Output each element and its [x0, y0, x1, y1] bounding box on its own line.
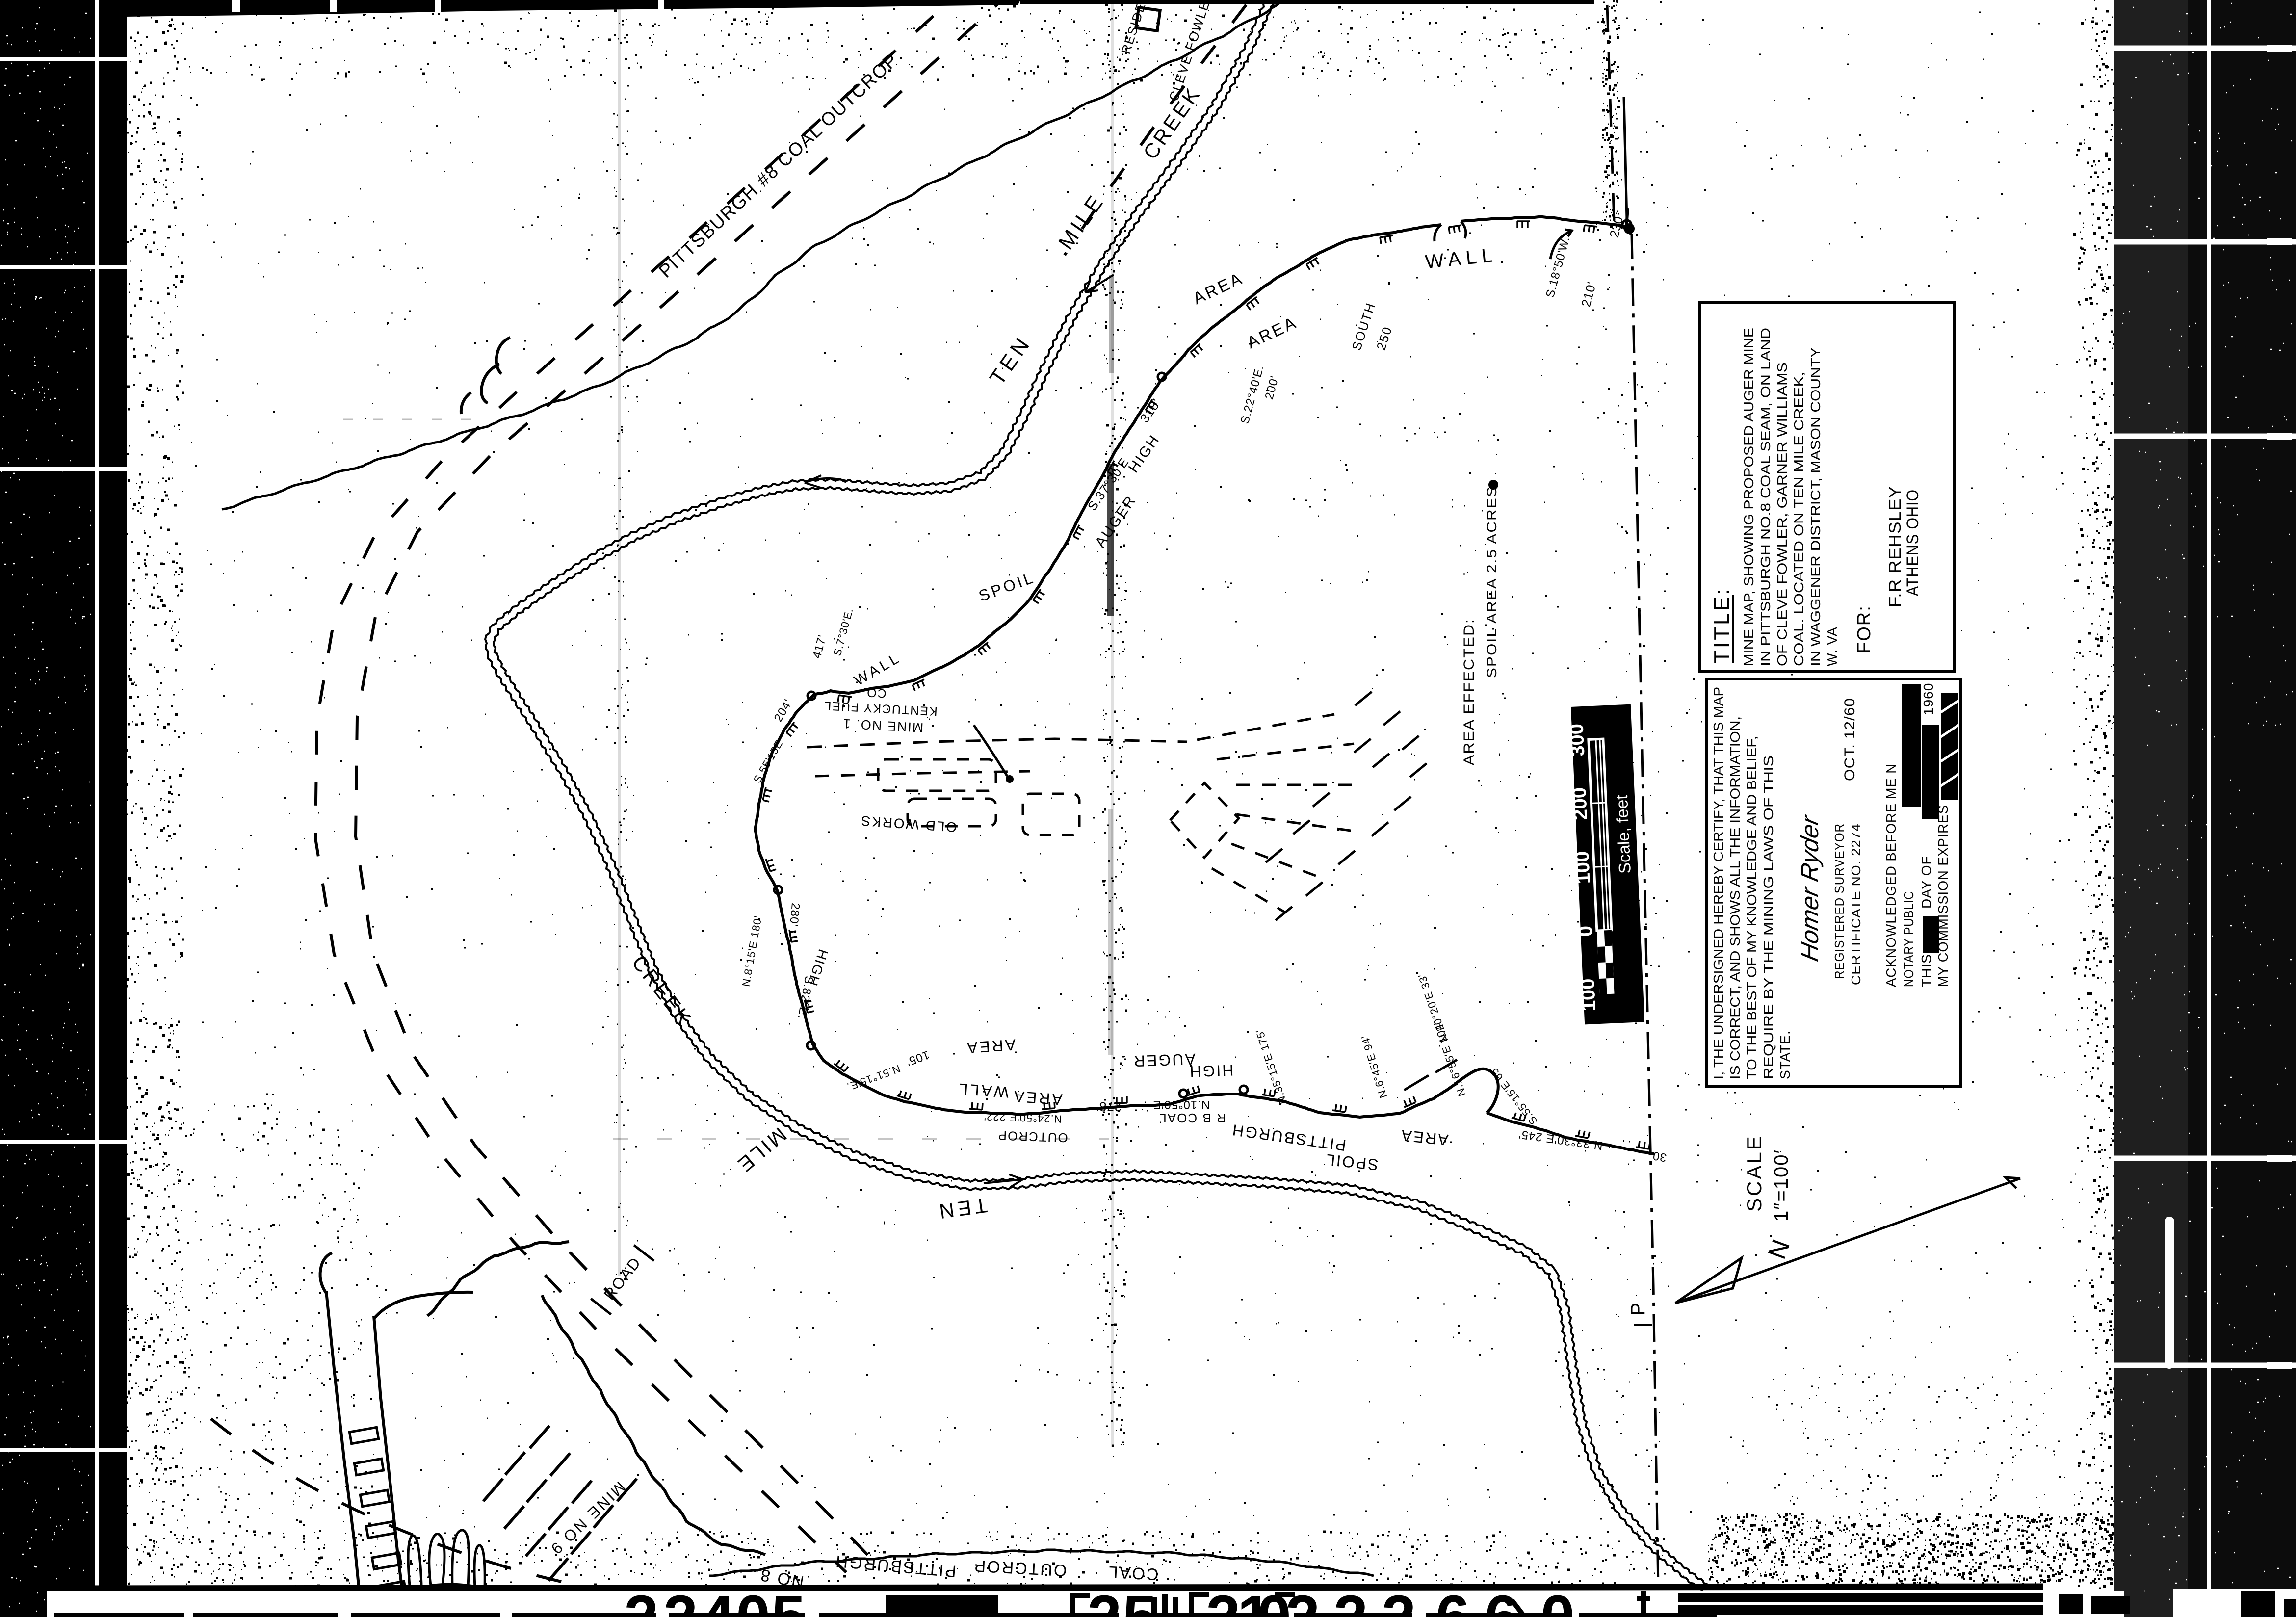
svg-text:AREA: AREA: [1012, 1087, 1063, 1108]
svg-text:IN PITTSBURGH NO.8 COAL SEAM,: IN PITTSBURGH NO.8 COAL SEAM, ON LAND: [1758, 328, 1773, 666]
svg-text:R B COAL: R B COAL: [1158, 1111, 1226, 1125]
svg-text:P: P: [1627, 1303, 1649, 1316]
svg-text:AREA EFFECTED:: AREA EFFECTED:: [1461, 618, 1477, 765]
svg-text:COAL. LOCATED ON TEN MILE CREE: COAL. LOCATED ON TEN MILE CREEK,: [1791, 372, 1806, 666]
svg-text:300: 300: [1565, 723, 1589, 757]
svg-text:REGISTERED SURVEYOR: REGISTERED SURVEYOR: [1832, 823, 1847, 979]
svg-text:ATHENS OHIO: ATHENS OHIO: [1904, 489, 1922, 596]
svg-text:WALL: WALL: [956, 1080, 1009, 1101]
svg-text:200: 200: [1568, 787, 1592, 821]
svg-text:NOTARY PUBLIC: NOTARY PUBLIC: [1901, 891, 1916, 987]
svg-text:0: 0: [1574, 925, 1596, 937]
svg-text:AUGER: AUGER: [1132, 1050, 1196, 1070]
svg-text:I, THE UNDERSIGNED HEREBY CERT: I, THE UNDERSIGNED HEREBY CERTIFY, THAT …: [1711, 687, 1726, 1079]
svg-text:6: 6: [1435, 1583, 1470, 1617]
svg-text:2: 2: [1333, 1583, 1368, 1617]
svg-text:N.10°50'E: N.10°50'E: [1153, 1098, 1210, 1111]
svg-text:0: 0: [736, 1583, 770, 1617]
svg-text:30: 30: [1651, 1149, 1668, 1165]
svg-text:W. VA: W. VA: [1825, 626, 1840, 666]
svg-text:2: 2: [1285, 1583, 1320, 1617]
svg-text:THIS: THIS: [1919, 954, 1934, 987]
svg-text:280': 280': [787, 902, 802, 927]
svg-text:AREA: AREA: [965, 1036, 1016, 1057]
svg-text:FOR:: FOR:: [1854, 605, 1875, 653]
svg-text:0: 0: [1540, 1583, 1575, 1617]
svg-text:Scale, feet: Scale, feet: [1613, 794, 1635, 874]
svg-text:SPOIL AREA 2.5 ACRES: SPOIL AREA 2.5 ACRES: [1484, 486, 1499, 678]
svg-text:2: 2: [1382, 1583, 1416, 1617]
svg-text:MINE MAP, SHOWING PROPOSED AUG: MINE MAP, SHOWING PROPOSED AUGER MINE: [1741, 328, 1756, 666]
svg-text:ACKNOWLEDGED BEFORE ME N: ACKNOWLEDGED BEFORE ME N: [1883, 763, 1899, 987]
svg-text:CO.: CO.: [861, 685, 887, 701]
svg-text:OF CLEVE FOWLER, GARNER WILLIA: OF CLEVE FOWLER, GARNER WILLIAMS: [1774, 362, 1790, 666]
svg-text:4: 4: [701, 1583, 735, 1617]
svg-text:CERTIFICATE NO. 2274: CERTIFICATE NO. 2274: [1849, 823, 1863, 985]
svg-text:2: 2: [663, 1583, 698, 1617]
svg-text:2: 2: [1206, 1583, 1240, 1617]
svg-text:OCT. 12/60: OCT. 12/60: [1842, 698, 1858, 781]
svg-text:2: 2: [624, 1583, 658, 1617]
svg-text:100: 100: [1577, 978, 1600, 1012]
svg-text:SCALE: SCALE: [1743, 1134, 1766, 1212]
svg-text:TITLE:: TITLE:: [1710, 587, 1734, 663]
svg-text:278': 278': [1096, 1099, 1122, 1114]
svg-text:100: 100: [1571, 851, 1594, 885]
svg-text:TO THE BEST OF MY KNOWLEDGE AN: TO THE BEST OF MY KNOWLEDGE AND BELIEF,: [1744, 736, 1759, 1079]
svg-text:DAY OF: DAY OF: [1919, 856, 1934, 909]
svg-text:COAL: COAL: [1107, 1563, 1159, 1584]
svg-text:F.R REHSLEY: F.R REHSLEY: [1886, 486, 1905, 607]
svg-text:IN WAGGENER DISTRICT, MASON CO: IN WAGGENER DISTRICT, MASON COUNTY: [1808, 347, 1823, 666]
svg-text:HIGH: HIGH: [1188, 1061, 1234, 1080]
svg-text:REQUIRE BY THE MINING LAWS OF: REQUIRE BY THE MINING LAWS OF THIS: [1761, 756, 1776, 1079]
svg-text:1960: 1960: [1921, 683, 1936, 715]
svg-text:Homer Ryder: Homer Ryder: [1796, 812, 1824, 964]
svg-text:5: 5: [771, 1583, 806, 1617]
svg-text:1″=100′: 1″=100′: [1771, 1149, 1792, 1222]
svg-text:2: 2: [1087, 1583, 1122, 1617]
svg-text:STATE.: STATE.: [1777, 1030, 1793, 1079]
svg-text:MY COMMISSION EXPIRES: MY COMMISSION EXPIRES: [1935, 805, 1951, 987]
svg-text:IS CORRECT, AND SHOWS ALL THE: IS CORRECT, AND SHOWS ALL THE INFORMATIO…: [1727, 716, 1743, 1079]
svg-text:OUTCROP: OUTCROP: [997, 1128, 1068, 1145]
